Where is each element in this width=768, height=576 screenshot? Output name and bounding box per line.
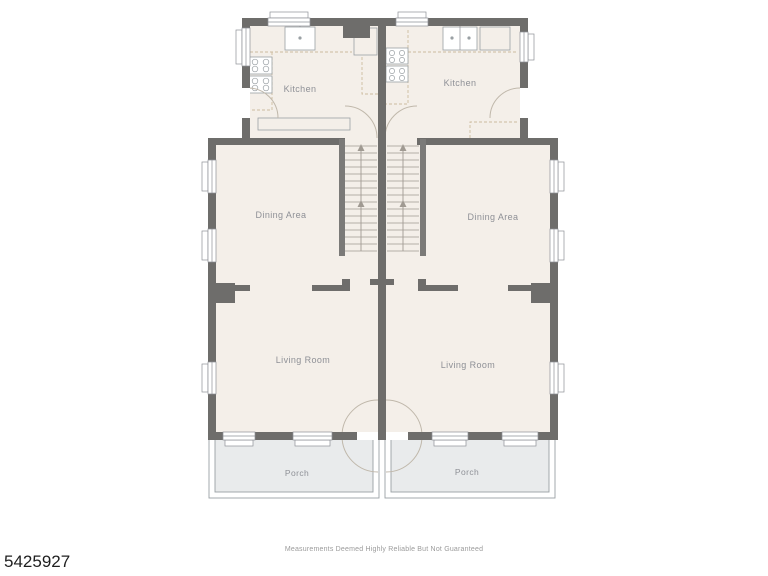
wall-pier-left — [208, 283, 235, 303]
room-label-porch-right: Porch — [455, 467, 479, 477]
window-dining-right-2 — [550, 229, 564, 262]
porch-left — [215, 439, 373, 492]
wall-stair-right — [420, 139, 426, 256]
window-kitchen-top-left — [268, 12, 310, 26]
room-label-dining-right: Dining Area — [468, 212, 519, 222]
room-label-porch-left: Porch — [285, 468, 309, 478]
window-front-right-2 — [502, 432, 538, 446]
wall-divider-tick-3 — [386, 279, 394, 285]
window-front-left-1 — [223, 432, 255, 446]
window-front-right-1 — [432, 432, 468, 446]
room-label-dining-left: Dining Area — [256, 210, 307, 220]
window-kitchen-top-right — [396, 12, 428, 26]
room-label-living-left: Living Room — [276, 355, 330, 365]
wall-divider-tick-1 — [342, 279, 350, 285]
wall-chimney — [343, 18, 370, 38]
room-label-kitchen-left: Kitchen — [284, 84, 317, 94]
window-kitchen-left-wall — [236, 28, 250, 66]
window-front-left-2 — [293, 432, 332, 446]
wall-stair-left — [339, 139, 345, 256]
window-living-right — [550, 362, 564, 394]
window-kitchen-right-wall — [520, 32, 534, 62]
door-gap-kitchen-left — [242, 88, 250, 118]
door-gap-kitchen-right — [520, 88, 528, 118]
room-label-living-right: Living Room — [441, 360, 495, 370]
porches — [209, 439, 555, 498]
wall-divider-tick-2 — [370, 279, 378, 285]
disclaimer-text: Measurements Deemed Highly Reliable But … — [0, 546, 768, 553]
window-living-left — [202, 362, 216, 394]
window-dining-right-1 — [550, 160, 564, 193]
door-gap-front-left — [357, 432, 378, 440]
window-dining-left-2 — [202, 229, 216, 262]
room-label-kitchen-right: Kitchen — [444, 78, 477, 88]
wall-divider-left-mid — [312, 285, 350, 291]
floor-plan: Kitchen Kitchen Dining Area Dining Area … — [0, 0, 768, 576]
wall-kitchen-dining-left — [208, 138, 345, 145]
wall-party-center — [378, 18, 386, 440]
wall-kitchen-dining-right — [417, 138, 558, 145]
wall-divider-right-mid — [418, 285, 458, 291]
window-dining-left-1 — [202, 160, 216, 193]
porch-right — [391, 439, 549, 492]
door-gap-front-right — [386, 432, 408, 440]
wall-divider-tick-4 — [418, 279, 426, 285]
wall-pier-right — [531, 283, 558, 303]
listing-id: 5425927 — [4, 552, 70, 572]
